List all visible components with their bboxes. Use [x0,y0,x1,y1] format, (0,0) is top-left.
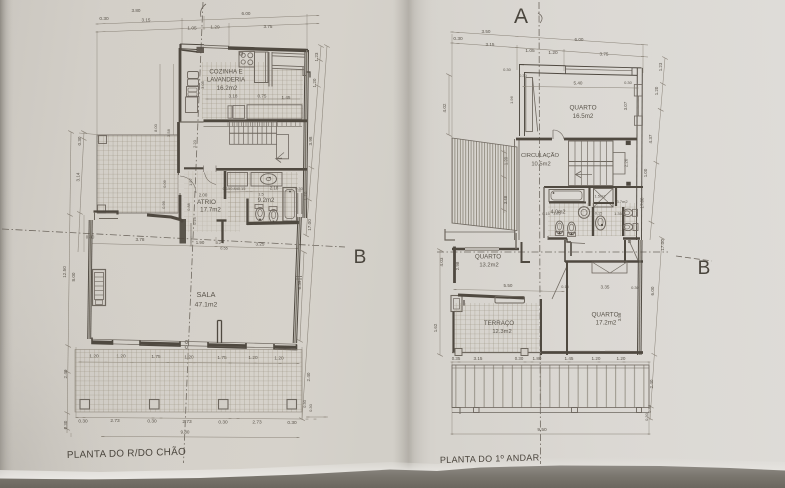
svg-text:17.2m2: 17.2m2 [596,320,617,327]
svg-text:0.30: 0.30 [77,136,82,145]
svg-text:0.30: 0.30 [624,80,633,85]
svg-text:A: A [514,5,528,28]
svg-text:16.2m2: 16.2m2 [217,85,238,92]
svg-text:3.25: 3.25 [256,242,265,247]
svg-text:0.30: 0.30 [515,356,524,361]
svg-text:12.3m2: 12.3m2 [492,329,511,335]
svg-text:3.7m2: 3.7m2 [616,199,628,204]
svg-text:B: B [354,247,367,268]
svg-text:0.30: 0.30 [78,419,88,425]
svg-text:3.75: 3.75 [600,52,609,57]
svg-text:0.30: 0.30 [308,403,313,412]
svg-text:5.40: 5.40 [574,81,583,86]
svg-text:1.62: 1.62 [433,323,438,332]
svg-text:9.50: 9.50 [537,427,547,433]
svg-text:1.29: 1.29 [210,25,220,31]
svg-text:1.20: 1.20 [617,356,626,361]
svg-text:CIRCULAÇÃO: CIRCULAÇÃO [521,152,559,159]
svg-text:1.25: 1.25 [553,211,562,216]
svg-text:2.98: 2.98 [455,261,460,270]
svg-text:0.55: 0.55 [220,246,228,251]
svg-text:0.30: 0.30 [503,67,512,72]
svg-text:2.40: 2.40 [649,379,654,388]
svg-text:0.30: 0.30 [218,420,228,426]
svg-text:17.7m2: 17.7m2 [200,207,221,214]
svg-text:1.5m2: 1.5m2 [594,194,606,199]
svg-text:1.20: 1.20 [654,86,659,95]
svg-text:0.30: 0.30 [647,404,652,413]
svg-text:2.73: 2.73 [182,419,192,425]
svg-text:QUARTO: QUARTO [475,254,501,261]
svg-text:1.00: 1.00 [643,168,648,177]
svg-text:TERRAÇO: TERRAÇO [484,320,514,327]
svg-text:0.30: 0.30 [99,16,109,22]
svg-text:0.30: 0.30 [302,399,307,408]
svg-text:1.20: 1.20 [504,156,509,165]
svg-text:3.58: 3.58 [166,128,171,137]
svg-text:0.75: 0.75 [258,94,267,99]
svg-text:16.5m2: 16.5m2 [573,113,594,120]
svg-text:0.30: 0.30 [147,419,157,425]
svg-text:1.05: 1.05 [187,26,197,32]
svg-text:1.80: 1.80 [533,356,542,361]
svg-text:QUARTO: QUARTO [591,312,618,319]
svg-text:3.15: 3.15 [474,356,483,361]
svg-text:0.99: 0.99 [162,201,166,208]
svg-text:0.30: 0.30 [519,73,528,78]
svg-text:LAVANDERIA: LAVANDERIA [207,77,246,84]
svg-text:3.80: 3.80 [132,8,141,13]
svg-text:2.73: 2.73 [252,420,262,426]
svg-text:1.23: 1.23 [314,52,319,61]
svg-text:3.78: 3.78 [136,237,145,242]
svg-text:10.5m2: 10.5m2 [531,162,550,168]
svg-text:6.00: 6.00 [650,286,655,295]
svg-text:6.00: 6.00 [242,11,251,16]
svg-text:2.20: 2.20 [624,158,629,167]
svg-text:3.18: 3.18 [229,94,238,99]
svg-text:3.98: 3.98 [308,136,313,145]
svg-text:0.30: 0.30 [287,420,297,426]
svg-text:12.50: 12.50 [62,266,67,278]
svg-text:3.05: 3.05 [200,80,205,89]
svg-text:0.35: 0.35 [452,356,461,361]
svg-text:3.07: 3.07 [623,101,628,110]
svg-text:0.30: 0.30 [453,36,463,42]
svg-text:2.00: 2.00 [199,193,208,198]
svg-text:0.15: 0.15 [595,212,602,216]
svg-text:0.15: 0.15 [193,217,197,224]
svg-text:17.00: 17.00 [640,197,645,209]
svg-text:8.00: 8.00 [71,272,76,281]
svg-text:1.90: 1.90 [196,240,205,245]
svg-text:2.18: 2.18 [270,186,279,191]
svg-text:0.30: 0.30 [63,420,68,429]
svg-text:COZINHA E: COZINHA E [209,69,242,76]
svg-text:2.40: 2.40 [306,372,311,381]
svg-text:3.50: 3.50 [482,29,491,34]
svg-text:1.23: 1.23 [658,62,663,71]
svg-text:9.2m2: 9.2m2 [258,198,275,204]
svg-text:0.2: 0.2 [216,241,221,245]
svg-text:2.73: 2.73 [110,418,120,424]
svg-text:3.14: 3.14 [76,172,81,181]
svg-text:3.35: 3.35 [601,285,610,290]
svg-text:1.20: 1.20 [592,356,601,361]
svg-text:17.00: 17.00 [307,219,312,231]
svg-text:9.80: 9.80 [181,430,190,435]
svg-text:6.00: 6.00 [575,37,584,42]
svg-text:0.88: 0.88 [187,203,191,210]
svg-text:4.02: 4.02 [442,103,447,112]
svg-text:47.1m2: 47.1m2 [195,302,218,309]
svg-text:17.00: 17.00 [660,239,665,251]
svg-text:3.75: 3.75 [264,24,273,29]
svg-text:3.15: 3.15 [486,42,495,47]
svg-text:2.20: 2.20 [192,139,197,148]
svg-text:1.96: 1.96 [509,95,514,104]
svg-text:1.45: 1.45 [282,95,291,100]
svg-text:1.20: 1.20 [548,50,558,56]
svg-text:13.2m2: 13.2m2 [479,263,498,269]
svg-text:SALA: SALA [197,290,216,299]
svg-text:1.45: 1.45 [565,356,574,361]
svg-text:5.50: 5.50 [504,283,513,288]
svg-text:ATRIO: ATRIO [197,199,216,206]
svg-text:3.48: 3.48 [503,195,508,204]
svg-text:QUARTO: QUARTO [569,105,596,112]
svg-text:2.40: 2.40 [63,369,68,378]
svg-text:4.37: 4.37 [648,134,653,143]
svg-text:1.05: 1.05 [525,48,535,54]
svg-text:3.15: 3.15 [142,18,151,23]
svg-text:0.30: 0.30 [644,412,649,421]
svg-text:8.00: 8.00 [153,123,158,132]
svg-text:1.20: 1.20 [312,78,317,87]
svg-text:1.57: 1.57 [188,177,193,186]
svg-text:1.5: 1.5 [258,192,264,197]
svg-text:0.09: 0.09 [163,180,167,187]
svg-text:1.35: 1.35 [614,211,623,216]
svg-text:3.56: 3.56 [617,312,622,321]
svg-text:B: B [698,258,711,279]
